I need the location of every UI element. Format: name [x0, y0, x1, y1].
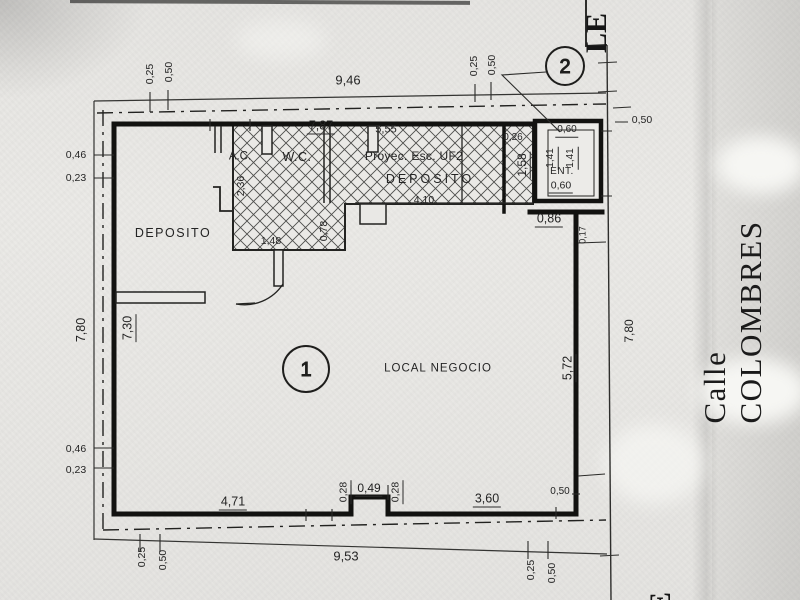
floor-plan-drawing: 1 2: [0, 0, 800, 600]
street-name-label: Calle COLOMBRES: [697, 221, 769, 424]
street-edge-line: [586, 0, 619, 600]
corner-label-top: LE: [580, 13, 614, 53]
unit-1-number: 1: [300, 359, 311, 381]
corner-label-bottom: LE: [644, 592, 678, 600]
door-swing-arc: [236, 284, 283, 305]
hatched-deposit-area: [233, 124, 533, 250]
unit-2-number: 2: [559, 56, 570, 78]
scanned-floor-plan: 1 2 0,250,509,460,250,500,507,875,550,26…: [0, 0, 800, 600]
